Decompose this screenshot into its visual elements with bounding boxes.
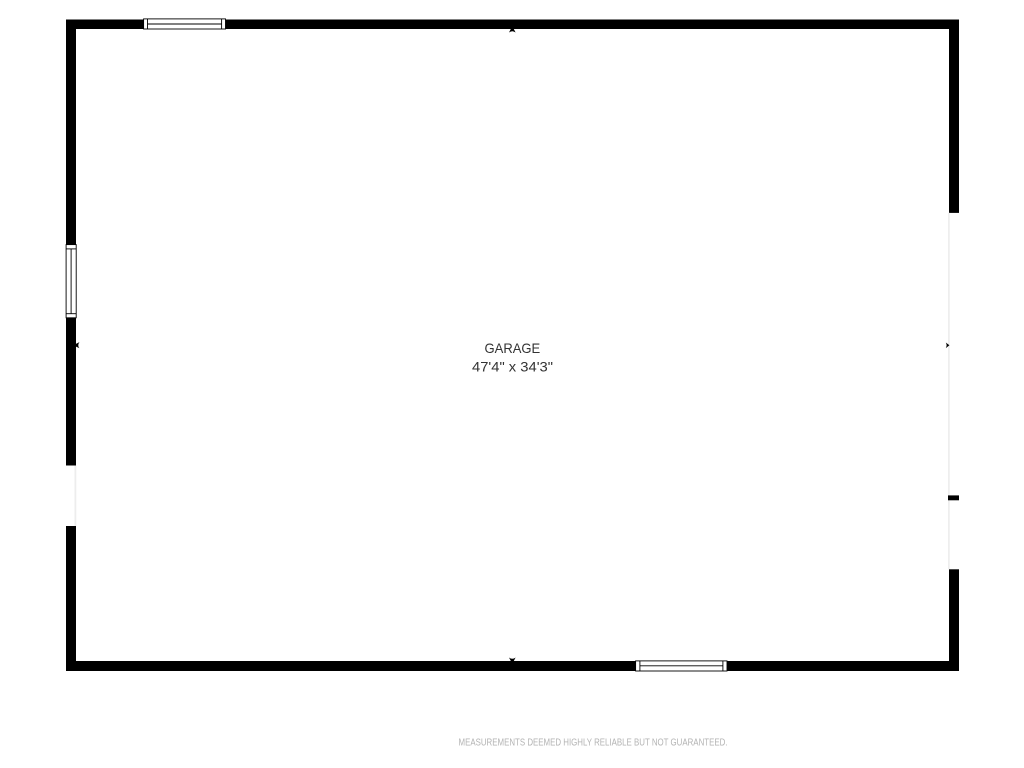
svg-text:47'4" x 34'3": 47'4" x 34'3" [472, 360, 553, 375]
svg-text:GARAGE: GARAGE [485, 340, 541, 356]
svg-text:MEASUREMENTS DEEMED HIGHLY REL: MEASUREMENTS DEEMED HIGHLY RELIABLE BUT … [459, 737, 728, 748]
